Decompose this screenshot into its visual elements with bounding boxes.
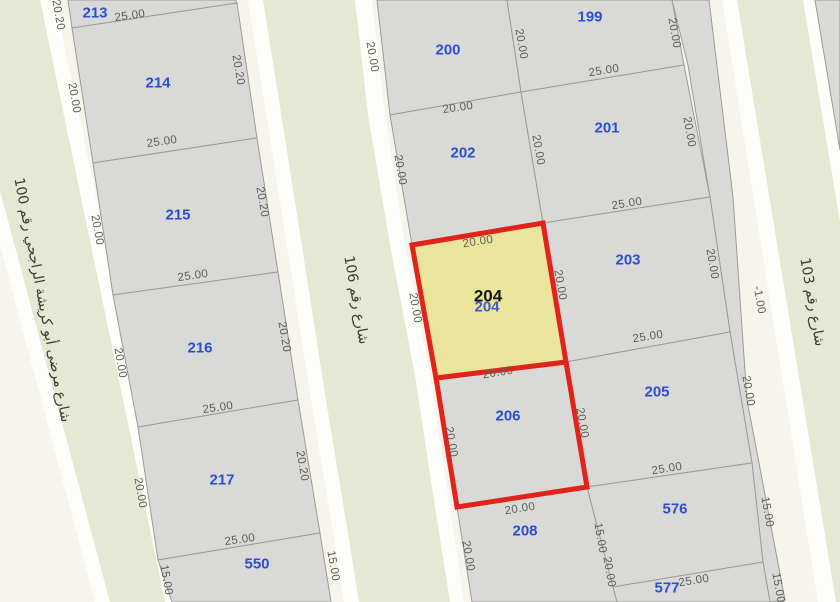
parcel-number-199: 199 <box>577 9 602 26</box>
parcel-number-203: 203 <box>615 252 640 269</box>
parcel-number-550: 550 <box>244 556 269 573</box>
parcel-number-577: 577 <box>654 580 679 597</box>
parcel-number-208: 208 <box>512 523 537 540</box>
parcel-number-576: 576 <box>662 501 687 518</box>
parcel-202[interactable] <box>390 92 543 245</box>
parcel-number-217: 217 <box>209 472 234 489</box>
parcel-number-206: 206 <box>495 408 520 425</box>
parcel-number-213: 213 <box>82 5 107 22</box>
parcel-number-201: 201 <box>594 120 619 137</box>
parcel-number-215: 215 <box>165 207 190 224</box>
parcel-number-214: 214 <box>145 75 171 92</box>
cadastral-parcel-map: 20.2025.0020.0020.2025.0020.0020.2025.00… <box>0 0 840 602</box>
map-canvas: 20.2025.0020.0020.2025.0020.0020.2025.00… <box>0 0 840 602</box>
parcel-number-202: 202 <box>450 145 475 162</box>
parcel-number-204: 204 <box>474 287 503 306</box>
parcel-206[interactable] <box>436 362 587 507</box>
parcel-number-205: 205 <box>644 384 669 401</box>
parcel-number-216: 216 <box>187 340 212 357</box>
parcel-number-200: 200 <box>435 42 460 59</box>
